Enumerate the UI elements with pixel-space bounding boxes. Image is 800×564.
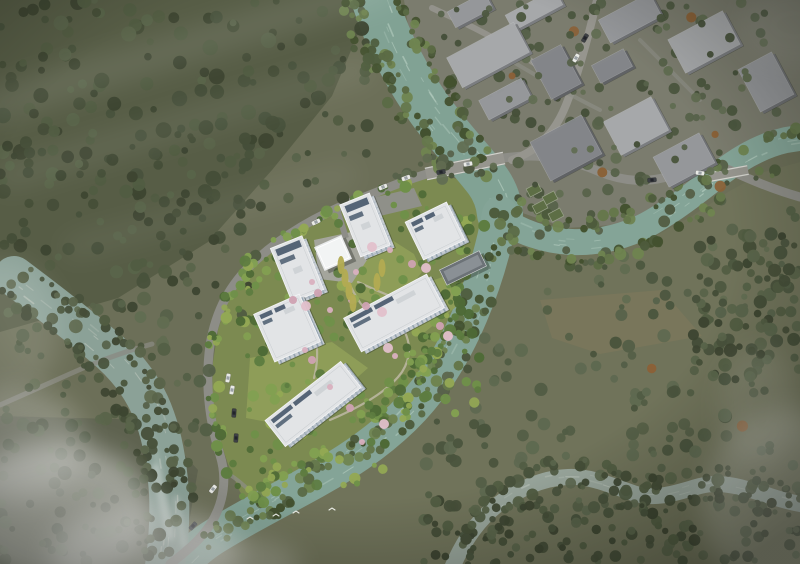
aerial-render-canvas: [0, 0, 800, 564]
atmosphere-layer: [0, 0, 800, 564]
vignette: [0, 0, 800, 564]
scene-svg: [0, 0, 800, 564]
